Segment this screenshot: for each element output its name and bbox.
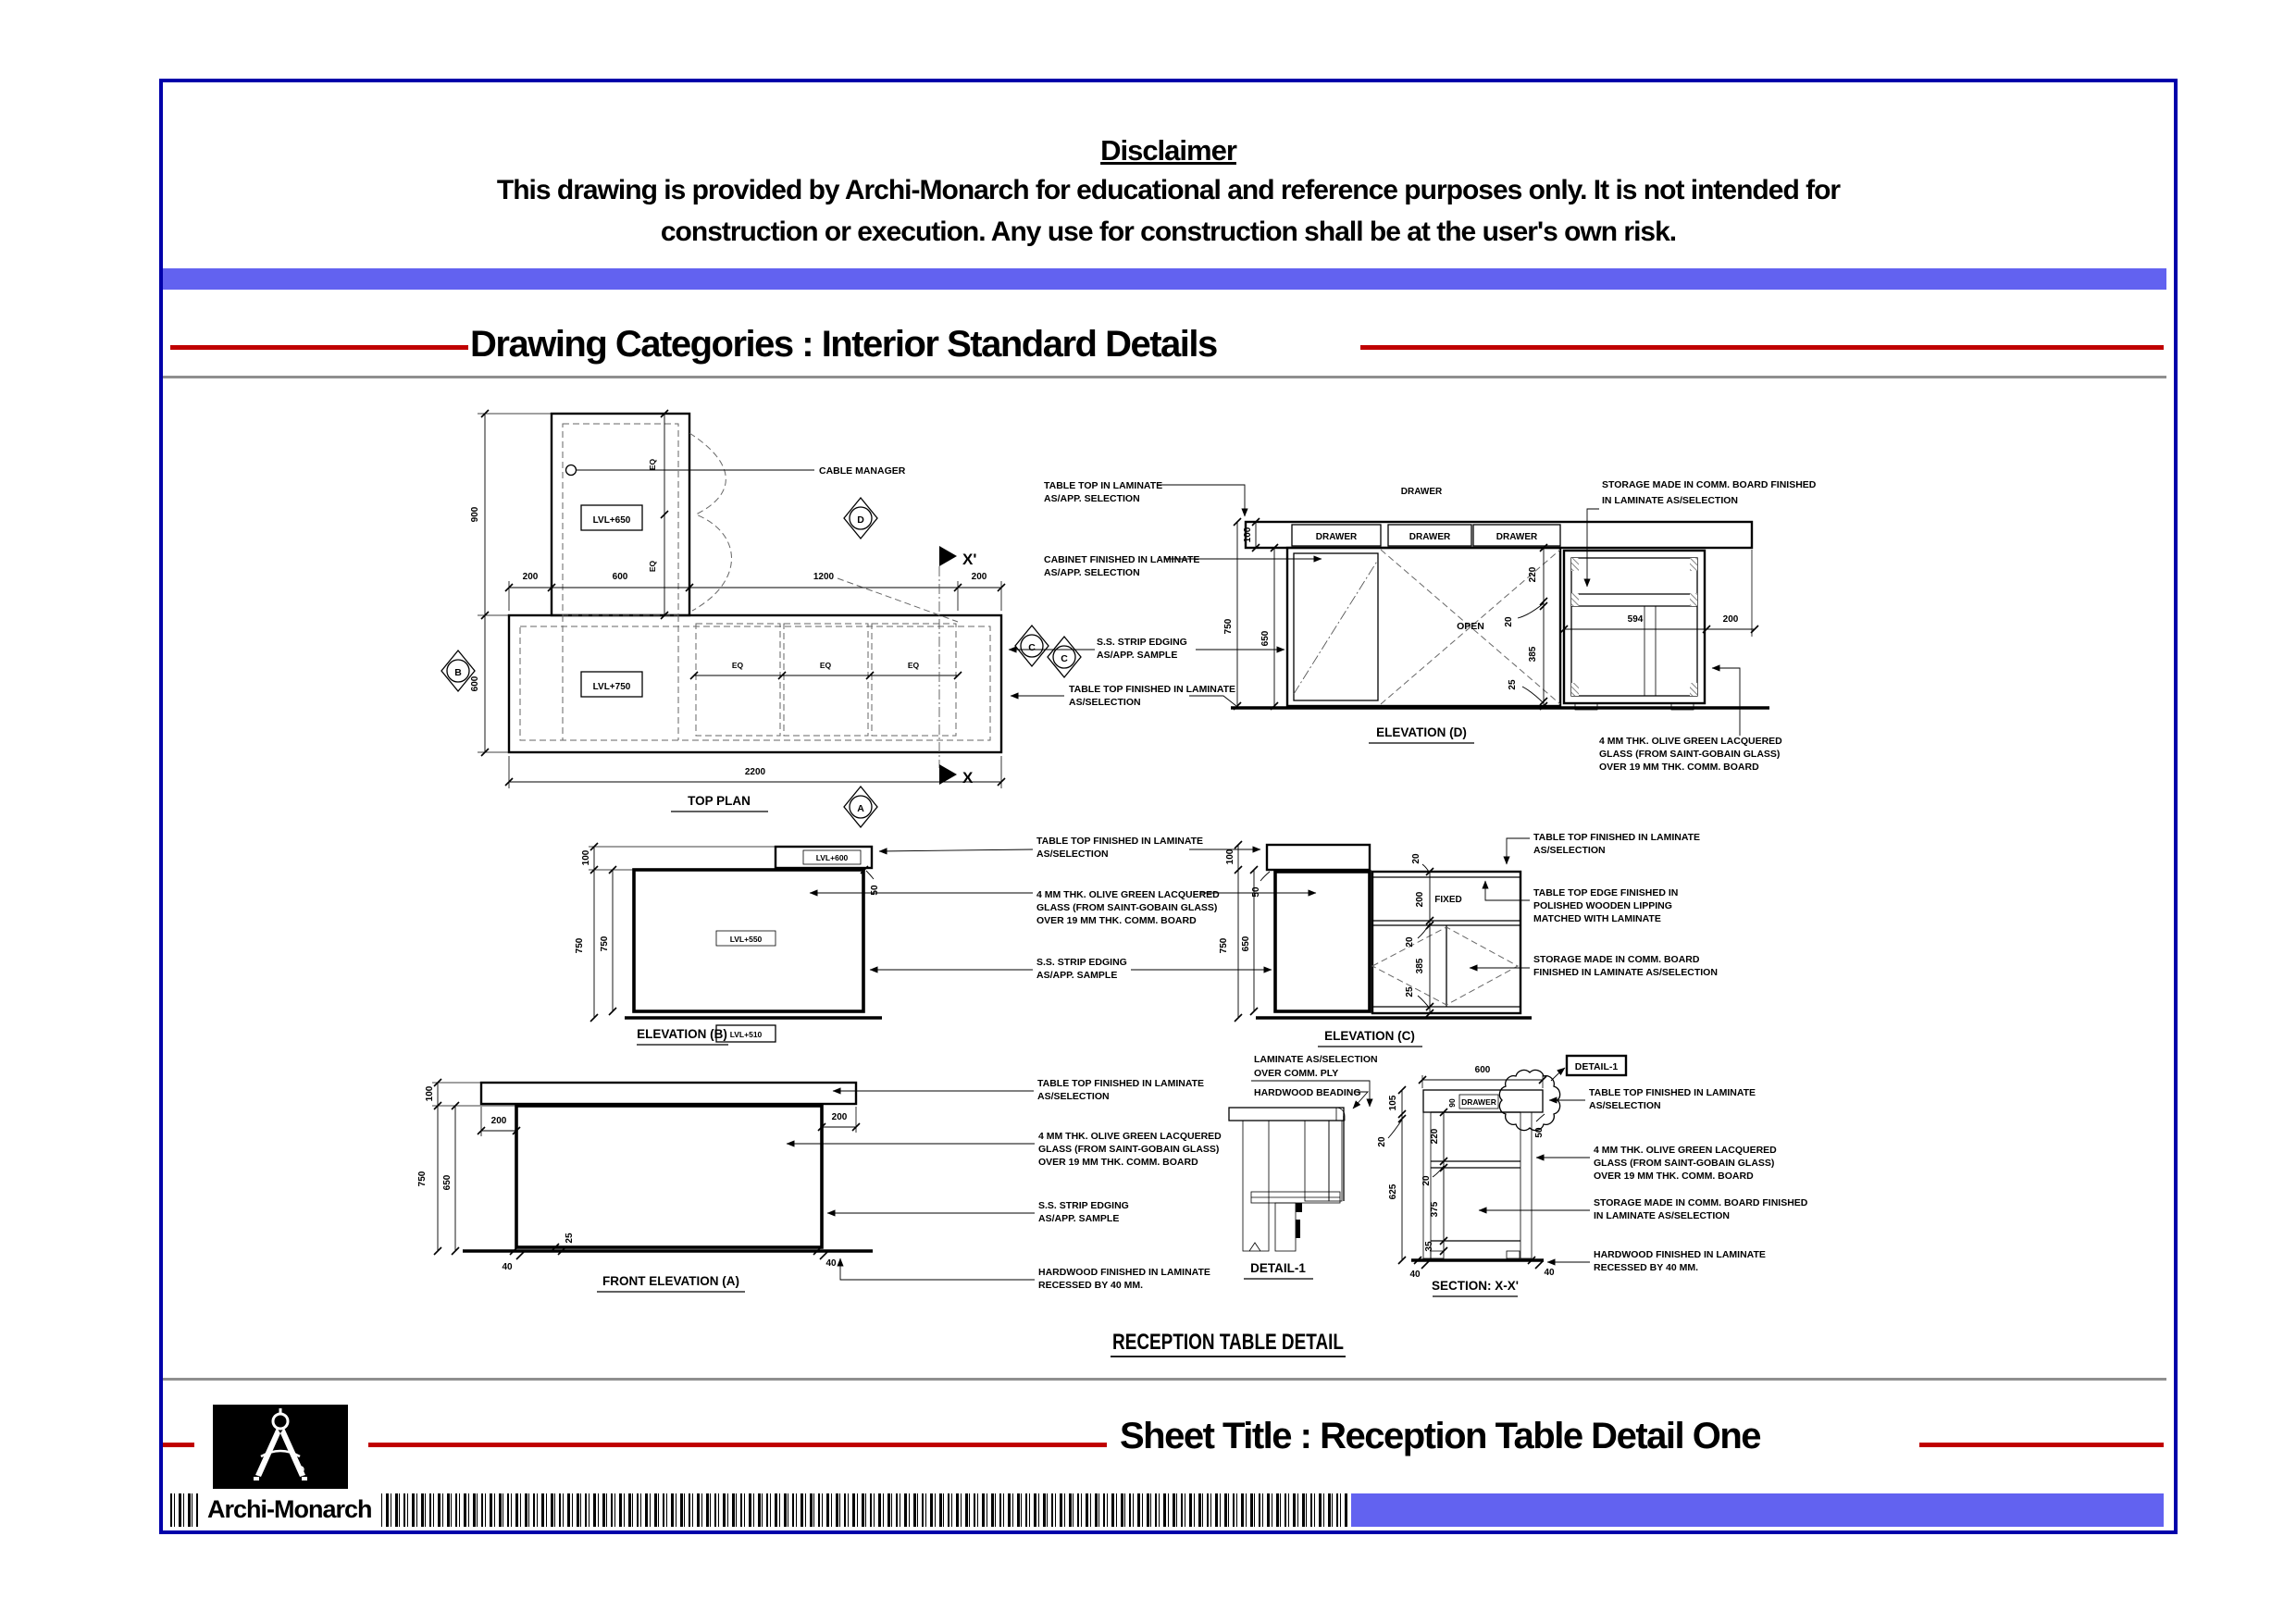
- dim-label: 385: [1528, 646, 1538, 662]
- note-line: AS/SELECTION: [1533, 845, 1606, 856]
- elevd-storage-unit: [1564, 551, 1705, 703]
- dim-label: 40: [502, 1262, 513, 1272]
- dim-label: 90: [1447, 1098, 1457, 1108]
- drawing-title-elevation-b: ELEVATION (B): [637, 1027, 727, 1041]
- dim-label: 220: [1430, 1128, 1440, 1144]
- note-line: S.S. STRIP EDGING: [1097, 637, 1187, 648]
- note-line: TABLE TOP FINISHED IN LAMINATE: [1069, 684, 1235, 695]
- note-line: RECESSED BY 40 MM.: [1594, 1262, 1698, 1273]
- dim-label: 105: [1388, 1095, 1398, 1110]
- drawer-label: DRAWER: [1316, 532, 1358, 542]
- dim-label: 750: [417, 1171, 428, 1186]
- note-line: AS/APP. SAMPLE: [1097, 650, 1177, 661]
- drawing-canvas: CABLE MANAGER 900 600 200 600 1200 200: [163, 379, 2174, 1377]
- note-line: GLASS (FROM SAINT-GOBAIN GLASS): [1038, 1144, 1219, 1155]
- dim-label: 600: [613, 572, 628, 582]
- dim-label: 1200: [813, 572, 835, 582]
- dim-label: 35: [1424, 1241, 1434, 1252]
- sheet-title: Sheet Title : Reception Table Detail One: [1120, 1416, 1760, 1457]
- note-line: AS/SELECTION: [1069, 697, 1141, 708]
- note-line: GLASS (FROM SAINT-GOBAIN GLASS): [1599, 749, 1780, 760]
- fronta-glass-panel: [516, 1106, 822, 1247]
- dim-label: 220: [1528, 566, 1538, 582]
- dim-label: 650: [1241, 935, 1251, 951]
- note-line: POLISHED WOODEN LIPPING: [1533, 900, 1672, 911]
- section-label: X: [962, 769, 974, 787]
- disclaimer-line1: This drawing is provided by Archi-Monarc…: [163, 175, 2174, 206]
- compass-icon: [213, 1405, 348, 1489]
- note-cable-manager: CABLE MANAGER: [819, 465, 906, 477]
- dim-label: 40: [825, 1258, 837, 1269]
- dim-label: 40: [1544, 1268, 1555, 1278]
- drawer-label: DRAWER: [1409, 532, 1451, 542]
- dim-label: 750: [600, 935, 610, 951]
- disclaimer-heading: Disclaimer: [163, 134, 2174, 167]
- note-line: LAMINATE AS/SELECTION: [1254, 1054, 1378, 1065]
- note-line: TABLE TOP EDGE FINISHED IN: [1533, 887, 1678, 898]
- elevd-notes-right: STORAGE MADE IN COMM. BOARD FINISHED IN …: [1587, 479, 1817, 773]
- level-label: LVL+600: [816, 853, 849, 862]
- drawer-label: DRAWER: [1496, 532, 1538, 542]
- eq-label: EQ: [648, 458, 657, 470]
- dim-label: 100: [1225, 849, 1235, 864]
- detail-support: [1243, 1121, 1269, 1251]
- note-line: 4 MM THK. OLIVE GREEN LACQUERED: [1594, 1145, 1777, 1156]
- note-line: OVER 19 MM THK. COMM. BOARD: [1599, 762, 1759, 773]
- section-xx-drawing: 600 DETAIL-1 DRAWER 90 50 220: [1377, 1056, 1808, 1296]
- note-line: 4 MM THK. OLIVE GREEN LACQUERED: [1599, 736, 1782, 747]
- svg-text:C: C: [1028, 642, 1036, 653]
- dim-label: 20: [1377, 1136, 1387, 1147]
- dim-label: 25: [1405, 986, 1415, 997]
- footer-rule-stub: [163, 1443, 194, 1447]
- section-notes-right: TABLE TOP FINISHED IN LAMINATE AS/SELECT…: [1479, 1087, 1808, 1273]
- note-line: TABLE TOP FINISHED IN LAMINATE: [1036, 836, 1203, 847]
- dim-label: 385: [1415, 958, 1425, 973]
- category-title: Drawing Categories : Interior Standard D…: [470, 324, 1217, 365]
- note-line: OVER COMM. PLY: [1254, 1068, 1338, 1079]
- barcode: Archi-Monarch: [170, 1493, 1347, 1527]
- note-line: IN LAMINATE AS/SELECTION: [1594, 1210, 1730, 1221]
- dim-label: 20: [1405, 936, 1415, 948]
- marker-a: A: [844, 787, 877, 827]
- note-line: HARDWOOD FINISHED IN LAMINATE: [1594, 1249, 1766, 1260]
- dim-label: 200: [972, 572, 987, 582]
- note-line: OVER 19 MM THK. COMM. BOARD: [1038, 1157, 1198, 1168]
- drawing-title-elevation-d: ELEVATION (D): [1376, 725, 1467, 739]
- note-line: AS/APP. SELECTION: [1044, 567, 1140, 578]
- elevc-notes-right: TABLE TOP FINISHED IN LAMINATE AS/SELECT…: [1470, 832, 1718, 978]
- category-rule-left: [170, 345, 468, 350]
- plan-drawer-1: [696, 624, 780, 736]
- dim-label: 100: [425, 1085, 435, 1101]
- brand-name: Archi-Monarch: [200, 1493, 379, 1527]
- mid-notes-column: TABLE TOP FINISHED IN LAMINATE AS/SELECT…: [810, 836, 1316, 981]
- note-line: AS/SELECTION: [1036, 849, 1109, 860]
- marker-c-elevd: C: [1015, 626, 1049, 666]
- front-elevation-a-drawing: 100 750 650 200 200 25 40 40 FRONT ELEVA…: [417, 1078, 1222, 1292]
- note-line: STORAGE MADE IN COMM. BOARD FINISHED: [1594, 1197, 1808, 1208]
- main-drawing-title: RECEPTION TABLE DETAIL: [1112, 1330, 1344, 1355]
- footer-rule-right: [1919, 1443, 2164, 1447]
- section-flag-xprime: [939, 546, 957, 566]
- elevation-c-drawing: FIXED 20 200 20 385 25 100 750 650 50 EL…: [1219, 832, 1718, 1047]
- dim-label: 200: [832, 1112, 848, 1122]
- note-line: STORAGE MADE IN COMM. BOARD FINISHED: [1602, 479, 1817, 490]
- note-line: CABINET FINISHED IN LAMINATE: [1044, 554, 1199, 565]
- level-label: LVL+650: [593, 515, 631, 526]
- note-line: TABLE TOP FINISHED IN LAMINATE: [1037, 1078, 1204, 1089]
- drawing-title-top-plan: TOP PLAN: [688, 794, 751, 808]
- plan-drawer-3: [872, 624, 956, 736]
- note-line: RECESSED BY 40 MM.: [1038, 1280, 1143, 1291]
- svg-text:C: C: [1061, 653, 1068, 664]
- dim-label: 50: [1251, 886, 1261, 898]
- plan-upper-counter: [552, 414, 689, 615]
- dim-label: 40: [1409, 1270, 1421, 1280]
- note-line: 4 MM THK. OLIVE GREEN LACQUERED: [1036, 889, 1220, 900]
- dim-label: 200: [1415, 891, 1425, 907]
- section-glass-front: [1520, 1112, 1532, 1258]
- sheet-frame: Disclaimer This drawing is provided by A…: [159, 79, 2178, 1534]
- dim-label: 625: [1388, 1183, 1398, 1199]
- dim-label: 594: [1628, 614, 1644, 625]
- dim-label: 200: [523, 572, 539, 582]
- dim-label: 750: [575, 937, 585, 953]
- plan-lower-table: [509, 615, 1001, 752]
- eq-label: EQ: [908, 661, 920, 670]
- dim-label: 200: [1723, 614, 1739, 625]
- separator-bottom: [163, 1378, 2166, 1381]
- note-drawer: DRAWER: [1401, 487, 1443, 497]
- note-open: OPEN: [1457, 621, 1484, 632]
- footer-rule-left: [368, 1443, 1107, 1447]
- note-line: GLASS (FROM SAINT-GOBAIN GLASS): [1594, 1158, 1774, 1169]
- section-label: X': [962, 551, 976, 568]
- cable-grommet: [566, 465, 577, 476]
- note-line: HARDWOOD BEADING: [1254, 1087, 1361, 1098]
- marker-d: D: [844, 498, 877, 539]
- detail-1-drawing: LAMINATE AS/SELECTION OVER COMM. PLY HAR…: [1229, 1054, 1378, 1279]
- dim-label: 100: [581, 849, 591, 865]
- note-line: AS/APP. SELECTION: [1044, 493, 1140, 504]
- dim-label: 25: [1508, 679, 1518, 690]
- dim-label: 750: [1219, 937, 1229, 953]
- disclaimer-line2: construction or execution. Any use for c…: [163, 217, 2174, 248]
- eq-label: EQ: [820, 661, 832, 670]
- detail-callout: DETAIL-1: [1575, 1061, 1619, 1072]
- note-line: 4 MM THK. OLIVE GREEN LACQUERED: [1038, 1131, 1222, 1142]
- top-banner: [163, 268, 2166, 290]
- note-line: AS/APP. SAMPLE: [1036, 970, 1117, 981]
- drawer-label: DRAWER: [1461, 1097, 1496, 1107]
- dim-label: 900: [470, 506, 480, 522]
- dim-label: 600: [1475, 1065, 1491, 1075]
- eq-label: EQ: [648, 560, 657, 572]
- fronta-notes-right: TABLE TOP FINISHED IN LAMINATE AS/SELECT…: [787, 1078, 1222, 1291]
- dim-label: 750: [1223, 618, 1234, 634]
- dim-label: 200: [491, 1116, 507, 1126]
- note-line: IN LAMINATE AS/SELECTION: [1602, 495, 1738, 506]
- dim-label: 50: [870, 885, 880, 896]
- dim-label: 2200: [745, 767, 766, 777]
- level-label: LVL+510: [730, 1030, 763, 1039]
- dim-label: 375: [1430, 1201, 1440, 1217]
- level-label: LVL+750: [593, 682, 631, 692]
- note-line: TABLE TOP FINISHED IN LAMINATE: [1533, 832, 1700, 843]
- note-line: MATCHED WITH LAMINATE: [1533, 913, 1661, 924]
- drawing-title-elevation-c: ELEVATION (C): [1324, 1029, 1415, 1043]
- brand-logo: [213, 1405, 348, 1489]
- drawing-sheet: Disclaimer This drawing is provided by A…: [0, 0, 2296, 1623]
- elevc-tabletop: [1267, 845, 1370, 870]
- dim-label: 100: [1243, 527, 1253, 542]
- dim-label: 20: [1411, 853, 1421, 864]
- note-line: TABLE TOP IN LAMINATE: [1044, 480, 1162, 491]
- note-line: TABLE TOP FINISHED IN LAMINATE: [1589, 1087, 1756, 1098]
- note-line: AS/APP. SAMPLE: [1038, 1213, 1119, 1224]
- drawing-title-front-a: FRONT ELEVATION (A): [602, 1274, 739, 1288]
- bottom-banner: [1351, 1493, 2164, 1527]
- drawing-title-section: SECTION: X-X': [1432, 1279, 1519, 1293]
- detail-tabletop: [1229, 1108, 1344, 1121]
- fronta-tabletop: [481, 1083, 856, 1104]
- note-line: FINISHED IN LAMINATE AS/SELECTION: [1533, 967, 1718, 978]
- note-line: S.S. STRIP EDGING: [1038, 1200, 1129, 1211]
- dim-label: 650: [1260, 630, 1271, 646]
- level-label: LVL+550: [730, 935, 763, 944]
- dim-label: 25: [565, 1233, 575, 1244]
- svg-text:D: D: [857, 514, 864, 526]
- top-plan-drawing: CABLE MANAGER 900 600 200 600 1200 200: [441, 410, 1081, 827]
- elevation-b-drawing: LVL+600 LVL+550 100 750 750 50 ELEVATION…: [575, 843, 882, 1045]
- note-line: GLASS (FROM SAINT-GOBAIN GLASS): [1036, 902, 1217, 913]
- dim-label: 20: [1421, 1175, 1432, 1186]
- dim-label: 50: [1534, 1127, 1545, 1138]
- marker-c-plan: C: [1048, 637, 1081, 677]
- dim-label: 650: [442, 1174, 453, 1190]
- separator-top: [163, 376, 2166, 378]
- note-line: STORAGE MADE IN COMM. BOARD: [1533, 954, 1700, 965]
- note-fixed: FIXED: [1434, 895, 1461, 905]
- note-line: OVER 19 MM THK. COMM. BOARD: [1594, 1171, 1754, 1182]
- elevd-cabinet: [1287, 548, 1560, 706]
- note-line: AS/SELECTION: [1037, 1091, 1110, 1102]
- eq-label: EQ: [732, 661, 744, 670]
- drawing-title-detail1: DETAIL-1: [1250, 1261, 1306, 1275]
- category-rule-right: [1360, 345, 2164, 350]
- dim-label: 600: [470, 675, 480, 691]
- note-line: AS/SELECTION: [1589, 1100, 1661, 1111]
- note-line: OVER 19 MM THK. COMM. BOARD: [1036, 915, 1197, 926]
- note-line: HARDWOOD FINISHED IN LAMINATE: [1038, 1267, 1210, 1278]
- svg-text:B: B: [454, 667, 462, 678]
- plan-drawer-2: [784, 624, 868, 736]
- dim-label: 20: [1504, 616, 1514, 627]
- svg-text:A: A: [857, 803, 864, 814]
- note-line: S.S. STRIP EDGING: [1036, 957, 1127, 968]
- elevation-d-drawing: DRAWER DRAWER DRAWER DRAWER OPEN 220 20 …: [1009, 479, 1817, 773]
